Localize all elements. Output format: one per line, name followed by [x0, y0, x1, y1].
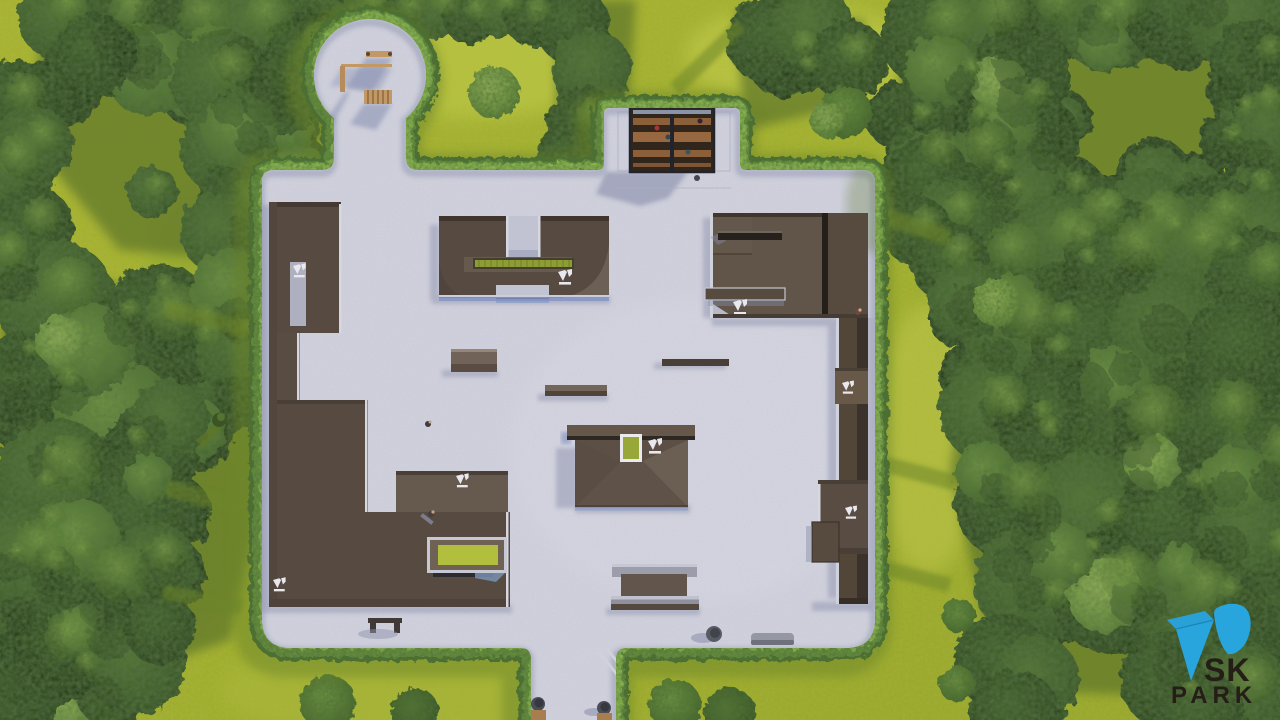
svg-text:PARK: PARK	[1171, 682, 1257, 709]
